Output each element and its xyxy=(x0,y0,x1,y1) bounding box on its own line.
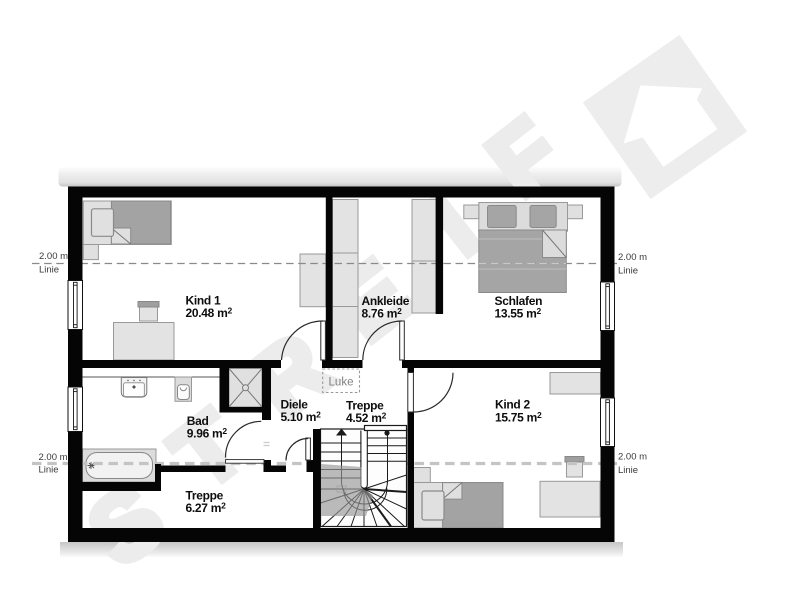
svg-text:9.96 m2: 9.96 m2 xyxy=(187,426,228,441)
svg-text:8.76 m2: 8.76 m2 xyxy=(362,306,403,321)
svg-text:Linie: Linie xyxy=(618,266,638,277)
svg-text:Kind 2: Kind 2 xyxy=(495,398,530,412)
svg-text:2.00 m: 2.00 m xyxy=(618,452,647,463)
svg-text:2.00 m: 2.00 m xyxy=(39,251,68,262)
svg-text:4.52 m2: 4.52 m2 xyxy=(346,411,387,426)
svg-text:F: F xyxy=(470,99,579,216)
svg-text:20.48 m2: 20.48 m2 xyxy=(186,306,233,321)
svg-text:13.55 m2: 13.55 m2 xyxy=(495,306,542,321)
svg-text:2.00 m: 2.00 m xyxy=(39,452,68,463)
svg-text:15.75 m2: 15.75 m2 xyxy=(495,410,542,425)
svg-text:5.10 m2: 5.10 m2 xyxy=(281,410,322,425)
svg-text:Linie: Linie xyxy=(618,465,638,476)
svg-text:Linie: Linie xyxy=(39,265,59,276)
svg-text:Luke: Luke xyxy=(329,377,354,389)
svg-text:6.27 m2: 6.27 m2 xyxy=(186,501,227,516)
svg-text:2.00 m: 2.00 m xyxy=(618,252,647,263)
svg-text:Linie: Linie xyxy=(39,465,59,476)
